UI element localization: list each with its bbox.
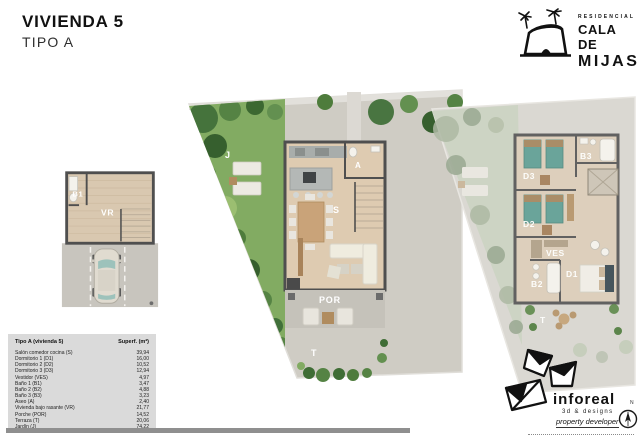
brand-name-line2: MIJAS bbox=[578, 53, 639, 71]
developer-tagline-2: property developer bbox=[556, 417, 619, 428]
developer-tagline-1: 3d & designs bbox=[562, 409, 614, 415]
north-arrow-icon bbox=[616, 404, 640, 430]
room-label-b1: B1 bbox=[72, 190, 83, 199]
fortress-palms-icon bbox=[516, 8, 576, 62]
garden bbox=[189, 99, 285, 347]
brand-name-line1: CALA DE bbox=[578, 22, 639, 52]
brand-text: RESIDENCIAL CALA DE MIJAS bbox=[578, 14, 639, 71]
table-header-surface: Superf. (m²) bbox=[118, 339, 149, 345]
brand-residencial: RESIDENCIAL bbox=[578, 14, 639, 20]
floorplan-sheet: VIVIENDA 5 TIPO A RESIDENCIAL CALA DE MI… bbox=[0, 0, 640, 437]
room-label-ves: VES bbox=[546, 248, 565, 258]
bedroom-1 bbox=[580, 265, 614, 292]
room-label-d1: D1 bbox=[566, 269, 578, 279]
residencial-brand: RESIDENCIAL CALA DE MIJAS bbox=[516, 6, 636, 64]
room-label-b2: B2 bbox=[531, 279, 543, 289]
room-label-a: A bbox=[355, 161, 361, 170]
unit-title: VIVIENDA 5 bbox=[22, 12, 124, 32]
footer-divider-bar bbox=[6, 428, 410, 433]
house-ground: A S bbox=[285, 142, 385, 290]
room-label-vr: VR bbox=[101, 208, 114, 218]
fireplace bbox=[287, 278, 300, 289]
room-label-t-first: T bbox=[540, 315, 546, 325]
house-first: D3 B3 bbox=[515, 135, 618, 303]
dotted-rule bbox=[528, 434, 634, 435]
north-label: N bbox=[630, 400, 634, 406]
ground-floor-plan: J bbox=[185, 88, 470, 393]
porch: POR bbox=[285, 290, 385, 328]
room-label-d3: D3 bbox=[523, 171, 535, 181]
site-marker-dot bbox=[150, 301, 154, 305]
room-label-s: S bbox=[333, 205, 340, 215]
car bbox=[91, 249, 122, 303]
developer-brand-name: inforeal bbox=[553, 391, 615, 408]
room-label-t-ground: T bbox=[311, 348, 317, 358]
developer-logo-block: inforeal 3d & designs property developer… bbox=[500, 342, 640, 437]
table-header-type: Tipo A (vivienda 5) bbox=[15, 339, 63, 345]
unit-subtitle: TIPO A bbox=[22, 34, 124, 50]
area-table: Tipo A (vivienda 5) Superf. (m²) Salón c… bbox=[8, 334, 156, 428]
room-label-j: J bbox=[225, 150, 231, 160]
room-label-b3: B3 bbox=[580, 151, 592, 161]
entrance-path bbox=[347, 92, 361, 142]
page-title: VIVIENDA 5 TIPO A bbox=[22, 12, 124, 50]
area-table-header: Tipo A (vivienda 5) Superf. (m²) bbox=[15, 339, 149, 345]
stairs-first bbox=[588, 169, 618, 195]
room-label-d2: D2 bbox=[523, 219, 535, 229]
cabinet bbox=[298, 238, 303, 276]
basement-plan: B1 VR bbox=[60, 164, 160, 312]
room-label-por: POR bbox=[319, 295, 341, 305]
